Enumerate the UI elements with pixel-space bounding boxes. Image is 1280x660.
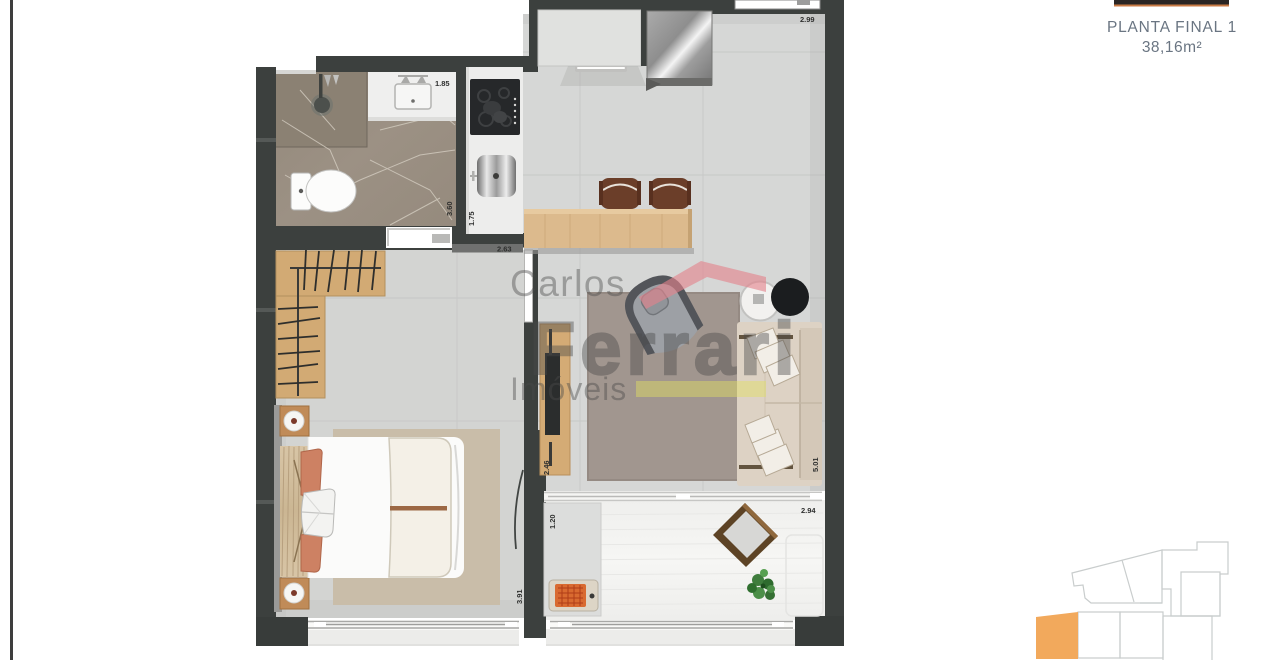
svg-text:38,16m²: 38,16m² [1142, 39, 1202, 56]
svg-text:2.94: 2.94 [801, 506, 816, 515]
svg-text:1.85: 1.85 [435, 79, 450, 88]
svg-text:1.20: 1.20 [548, 514, 557, 529]
svg-text:PLANTA FINAL 1: PLANTA FINAL 1 [1107, 19, 1237, 36]
svg-text:2.99: 2.99 [800, 15, 815, 24]
svg-text:3.91: 3.91 [515, 589, 524, 604]
svg-text:5.01: 5.01 [811, 457, 820, 472]
svg-text:3.60: 3.60 [445, 201, 454, 216]
svg-text:Carlos: Carlos [510, 263, 626, 304]
svg-text:1.75: 1.75 [467, 211, 476, 226]
svg-text:2.46: 2.46 [542, 460, 551, 475]
svg-text:2.63: 2.63 [497, 245, 512, 254]
svg-text:Imóveis: Imóveis [510, 371, 627, 407]
